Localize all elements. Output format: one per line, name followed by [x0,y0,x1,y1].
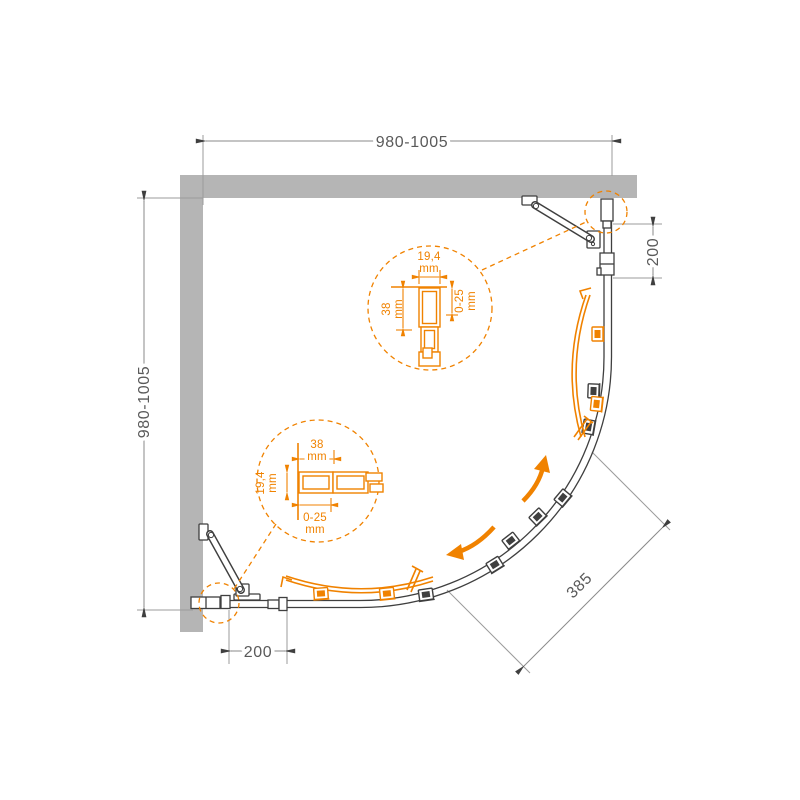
detail-left-depth-value: 19,4 [255,471,267,495]
dim-diagonal-385: 385 [447,452,670,673]
detail-left-width-value: 38 [310,439,323,451]
door-roller-icon [592,326,604,342]
arrow-down-icon [446,527,494,560]
detail-left-depth-unit: mm [267,473,279,493]
roller-icon [485,556,505,574]
support-bar-top [522,196,600,248]
wall-top [180,175,637,198]
detail-top-depth-value: 38 [381,302,393,315]
detail-callout-left: 38 mm 19,4 mm 0-25 mm [255,439,383,536]
dim-label-diagonal: 385 [564,570,596,602]
dim-label-left-height: 980-1005 [136,366,153,438]
detail-left-adjust-unit: mm [305,524,325,536]
door-roller-icon [590,395,603,412]
detail-top-depth-unit: mm [393,299,405,319]
walls [180,175,637,632]
technical-drawing-canvas: 980-1005 980-1005 200 200 385 [0,0,800,800]
sliding-door-top [572,288,603,440]
roller-icon [528,507,547,526]
roller-icon [553,488,572,508]
detail-top-adjust-unit: mm [466,291,478,311]
dim-label-bottom-segment: 200 [244,644,273,661]
wall-left [180,175,203,632]
dim-label-top-width: 980-1005 [376,134,448,151]
detail-top-width-value: 19,4 [417,251,441,263]
detail-left-adjust-value: 0-25 [303,512,327,524]
track-inner [230,221,604,601]
roller-icon [417,588,434,602]
detail-callout-top: 19,4 mm 38 mm 0-25 mm [381,251,478,366]
track-outer [191,199,612,608]
door-roller-icon [313,587,330,600]
detail-top-adjust-value: 0-25 [454,289,466,313]
dim-bottom-200: 200 [229,610,287,664]
callout-leaders [199,191,627,623]
detail-left-width-unit: mm [307,451,327,463]
dim-right-200: 200 [613,224,662,278]
detail-top-width-unit: mm [419,263,439,275]
roller-icon [501,531,521,550]
enclosure-track [191,199,612,608]
door-roller-icon [378,587,395,600]
arrow-up-icon [523,455,550,501]
dim-label-right-segment: 200 [645,238,662,267]
